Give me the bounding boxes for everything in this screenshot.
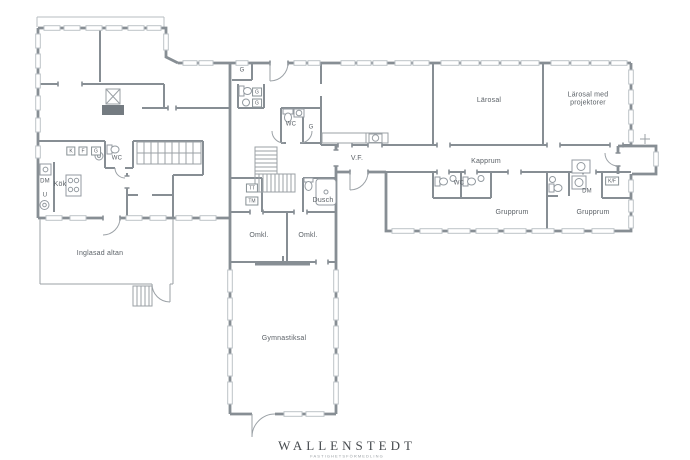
label-g-cabinet-1: G xyxy=(252,88,262,97)
label-u-appliance: U xyxy=(43,192,48,199)
label-g-closet: G xyxy=(309,124,314,131)
room-label-dusch: Dusch xyxy=(313,197,334,205)
fixtures xyxy=(40,86,590,210)
room-label-kapprum: Kapprum xyxy=(471,158,501,166)
label-wc-kitchen: WC xyxy=(112,155,122,162)
hearth-block xyxy=(102,105,124,115)
wallenstedt-logo: WALLENSTEDT xyxy=(278,438,416,454)
label-kf-cabinet: K/F xyxy=(605,177,619,186)
outer-walls xyxy=(38,28,656,414)
label-tm-closet: TM xyxy=(245,197,258,206)
label-g-cabinet-2: G xyxy=(252,99,262,108)
room-label-larosal-projektorer: Lärosal med projektorer xyxy=(555,92,621,109)
thin-details xyxy=(40,63,650,437)
door-jambs xyxy=(58,61,623,265)
room-label-omkl-right: Omkl. xyxy=(298,232,317,240)
label-dm-kitchen: DM xyxy=(40,178,50,185)
floorplan-page: Lärosal Lärosal med projektorer Kapprum … xyxy=(0,0,690,460)
room-label-omkl-left: Omkl. xyxy=(249,232,268,240)
floorplan-drawing xyxy=(0,0,690,460)
room-label-grupprum-right: Grupprum xyxy=(576,209,609,217)
wallenstedt-tagline: FASTIGHETSFÖRMEDLING xyxy=(310,454,384,459)
label-dm-group: DM xyxy=(582,188,592,195)
room-label-vf: V.F. xyxy=(351,155,363,163)
room-label-larosal: Lärosal xyxy=(477,97,501,105)
label-k-cabinet: K xyxy=(66,147,75,156)
room-label-gymnastiksal: Gymnastiksal xyxy=(262,335,306,343)
label-g-room: G xyxy=(240,67,245,74)
room-label-inglasad-altan: Inglasad altan xyxy=(77,250,123,258)
room-label-grupprum-left: Grupprum xyxy=(495,209,528,217)
label-tt-closet: TT xyxy=(246,184,258,193)
label-wc-group: WC xyxy=(454,180,464,187)
label-g-cabinet-kitchen: G xyxy=(91,147,101,156)
room-label-kok: Kök xyxy=(54,181,67,189)
label-wc-center: WC xyxy=(286,121,296,128)
label-f-cabinet: F xyxy=(78,147,87,156)
